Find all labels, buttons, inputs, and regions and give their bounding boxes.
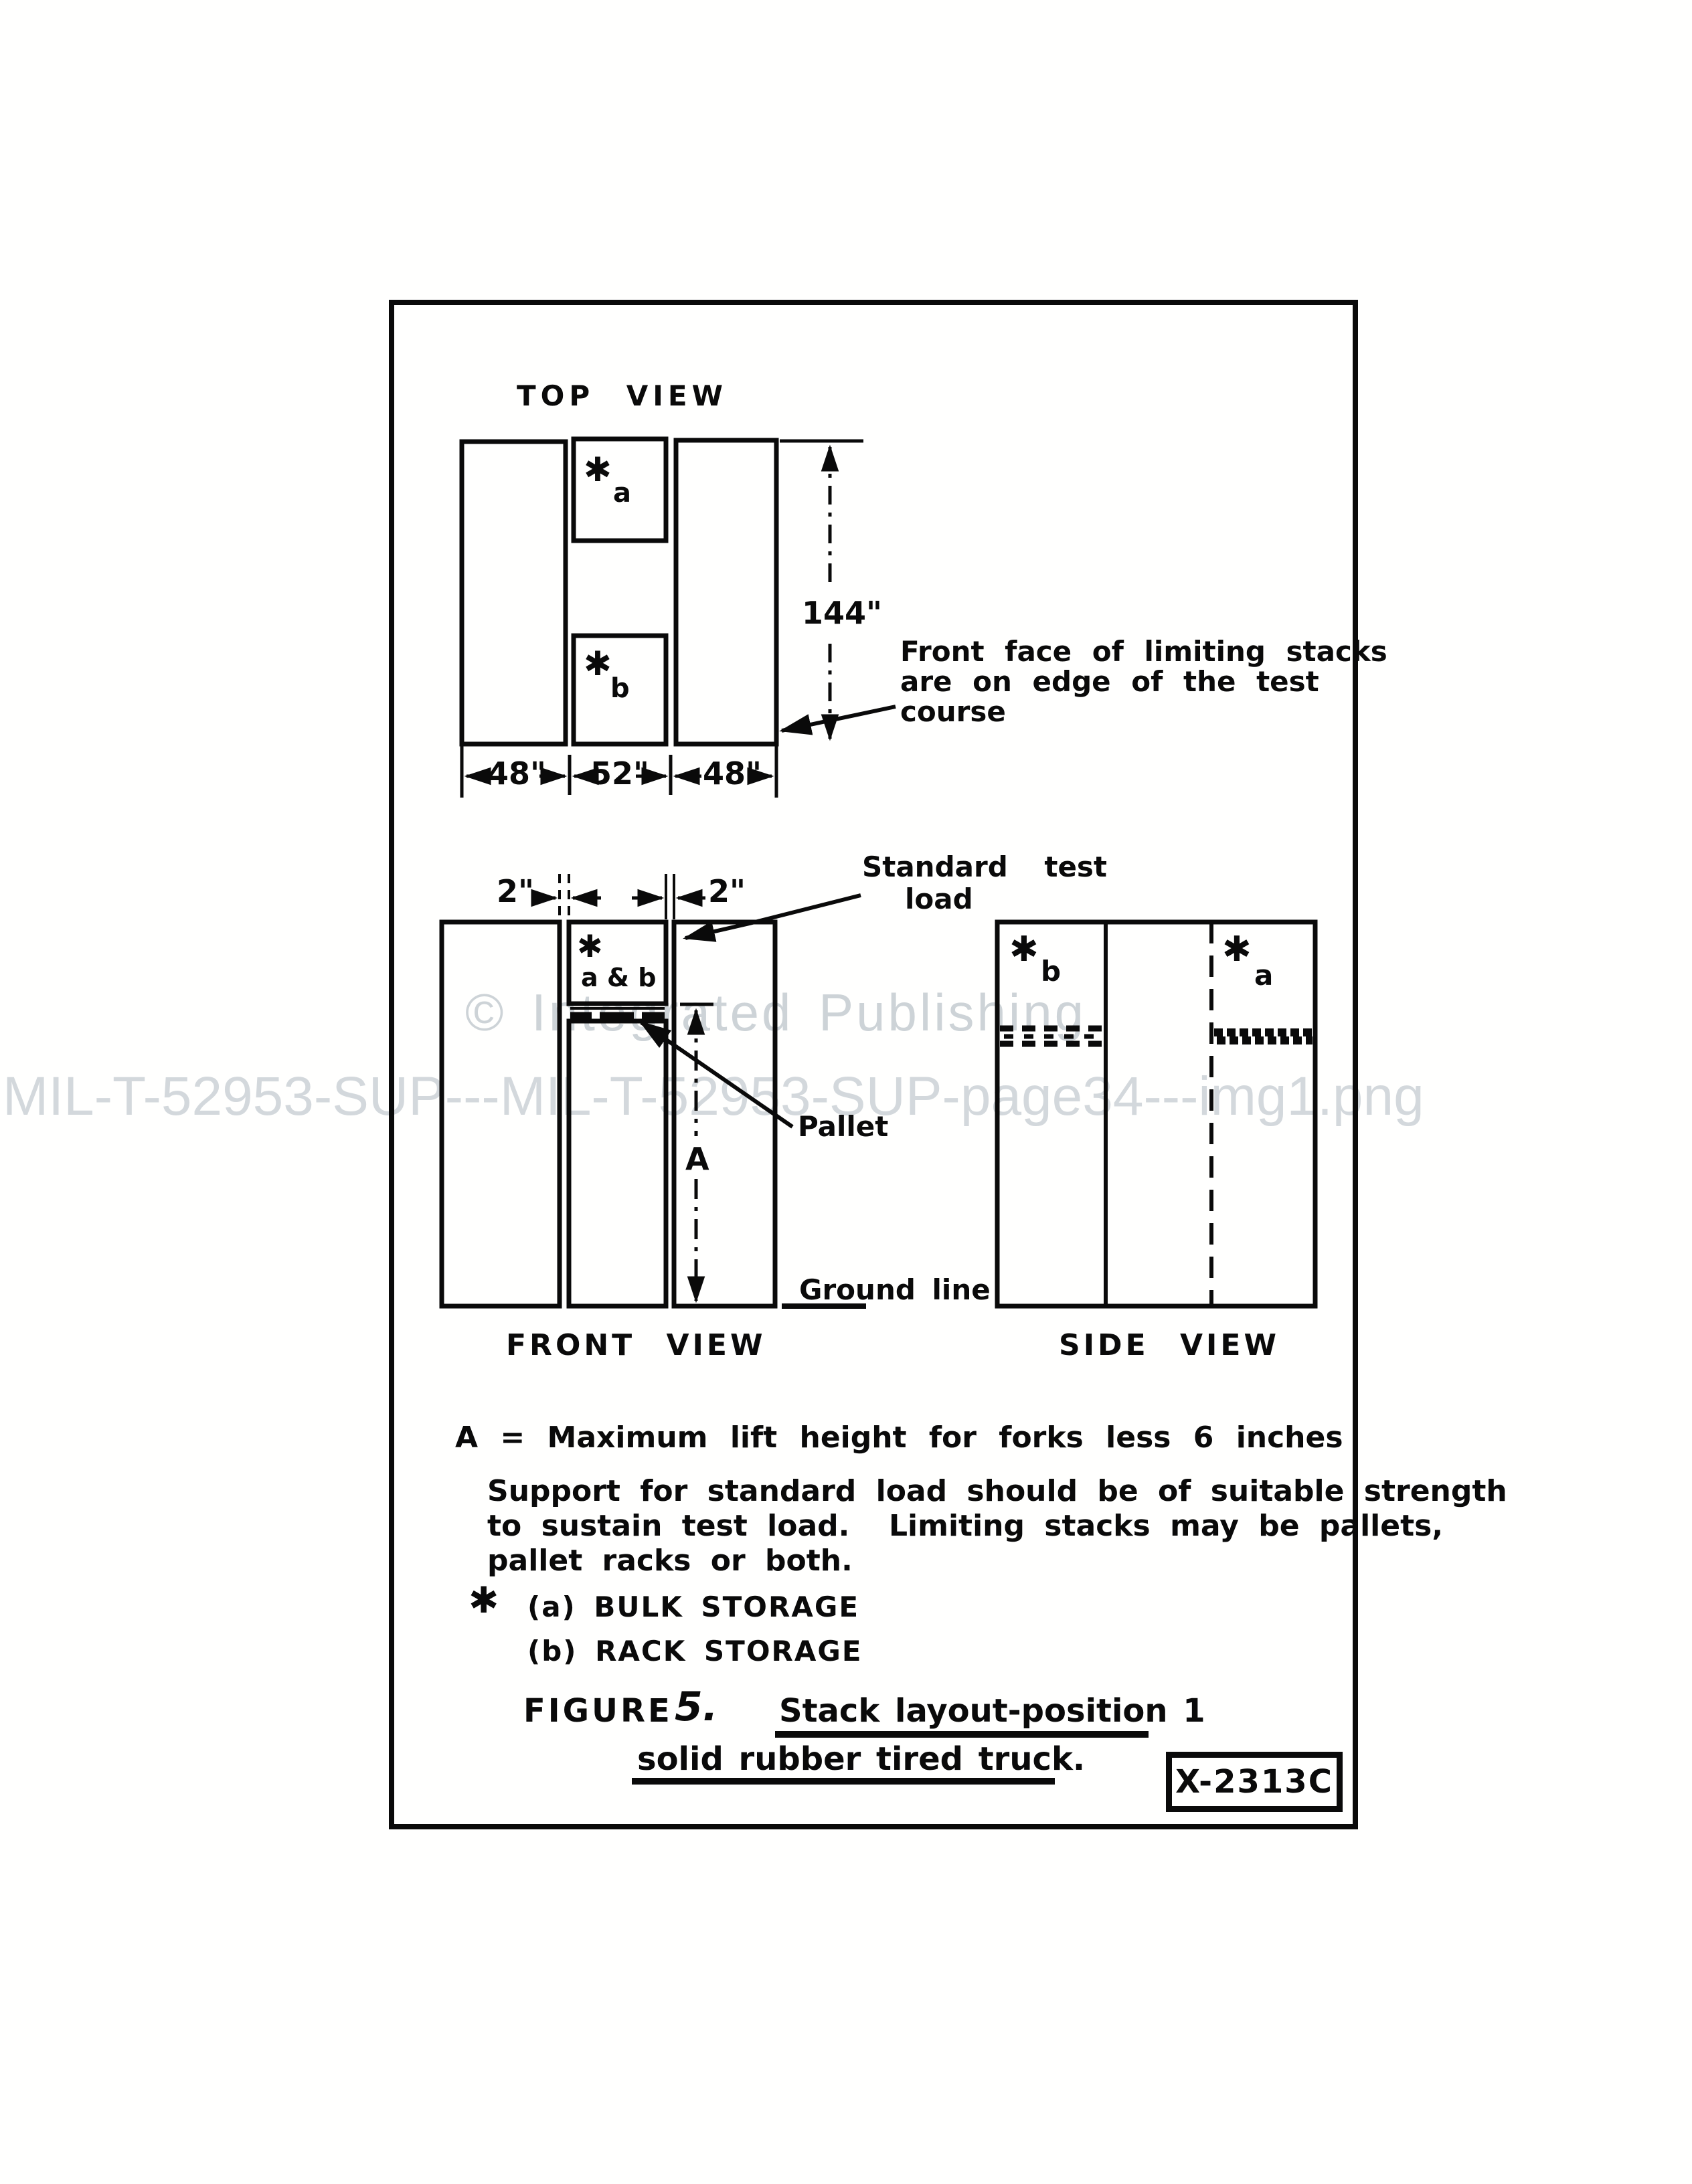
scanned-figure-page: © Integrated Publishing MIL-T-52953-SUP-… <box>0 0 1692 2184</box>
gap-2in-left: 2" <box>497 875 534 907</box>
top-view-stack-b-label: b <box>610 674 630 703</box>
note-lift-height: A = Maximum lift height for forks less 6… <box>455 1423 1343 1453</box>
load-box-label: a & b <box>581 965 656 992</box>
side-view-stack-a-label: a <box>1254 961 1273 990</box>
standard-test-load-line-1: Standard test <box>862 852 1107 882</box>
asterisk-icon: ✱ <box>1222 931 1252 968</box>
legend-rack-storage: (b) RACK STORAGE <box>527 1637 863 1666</box>
asterisk-icon: ✱ <box>577 930 603 962</box>
legend-bulk-storage: (a) BULK STORAGE <box>527 1592 859 1622</box>
annotation-line-3: course <box>900 697 1006 727</box>
dim-48-left: 48" <box>487 757 546 790</box>
caption-figure-word: FIGURE <box>523 1694 673 1728</box>
dim-52: 52" <box>590 757 649 790</box>
dim-144: 144" <box>798 597 886 629</box>
drawing-number: X-2313C <box>1175 1765 1333 1799</box>
asterisk-icon: ✱ <box>1009 931 1039 968</box>
lift-height-a-label: A <box>683 1143 712 1175</box>
top-view-title: TOP VIEW <box>517 381 728 411</box>
asterisk-icon: ✱ <box>469 1582 499 1620</box>
note-support-line-2: to sustain test load. Limiting stacks ma… <box>487 1511 1443 1542</box>
top-view-stack-a-label: a <box>613 479 631 507</box>
caption-title-line-2: solid rubber tired truck. <box>637 1742 1085 1776</box>
pallet-label: Pallet <box>798 1112 888 1142</box>
figure-linework <box>0 0 1692 2184</box>
gap-2in-right: 2" <box>708 875 746 907</box>
side-view-stack-b-label: b <box>1041 957 1061 986</box>
drawing-number-stamp: X-2313C <box>1166 1752 1343 1812</box>
standard-test-load-line-2: load <box>905 885 973 914</box>
note-support-line-3: pallet racks or both. <box>487 1546 853 1576</box>
dim-48-right: 48" <box>703 757 762 790</box>
front-view-title: FRONT VIEW <box>506 1330 766 1361</box>
asterisk-icon: ✱ <box>584 646 612 682</box>
asterisk-icon: ✱ <box>584 452 612 488</box>
annotation-line-2: are on edge of the test <box>900 667 1319 697</box>
annotation-line-1: Front face of limiting stacks <box>900 637 1387 666</box>
ground-line-label: Ground line <box>799 1275 991 1305</box>
caption-title-line-1: Stack layout-position 1 <box>779 1694 1205 1728</box>
side-view-title: SIDE VIEW <box>1059 1330 1280 1361</box>
caption-figure-number: 5. <box>675 1686 718 1728</box>
note-support-line-1: Support for standard load should be of s… <box>487 1476 1507 1507</box>
